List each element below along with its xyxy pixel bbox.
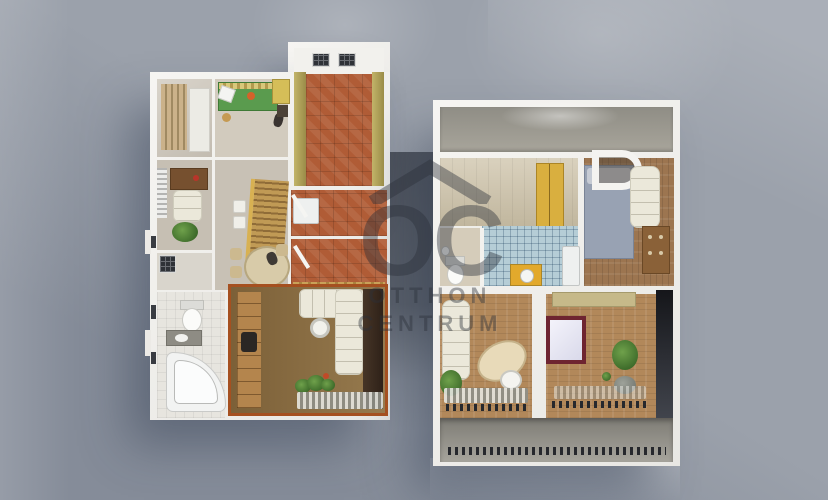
bed-pillow-orange xyxy=(247,92,255,100)
shelf-bed xyxy=(189,88,210,152)
toilet-bowl xyxy=(182,308,202,332)
garage-floor xyxy=(306,74,372,186)
sofa-bedroom xyxy=(630,166,660,228)
background-left-light-band xyxy=(0,0,70,500)
room-wc-left xyxy=(157,253,212,290)
terrace-light-glow xyxy=(500,101,620,131)
sofa-l-right xyxy=(335,289,363,375)
flower-pot xyxy=(323,373,329,379)
toilet-bowl-right xyxy=(447,264,464,285)
dresser-handle-4 xyxy=(659,251,663,255)
stairwell-dark-strip xyxy=(656,290,673,418)
drawers-dark xyxy=(277,105,288,117)
room-utility-1 xyxy=(291,190,387,236)
plant-living-3 xyxy=(321,379,335,391)
stool xyxy=(222,113,231,122)
framed-panel xyxy=(546,316,586,364)
desk-item xyxy=(193,175,199,181)
plant-br-2 xyxy=(602,372,611,381)
side-table-round xyxy=(500,370,522,390)
room-bottom-right xyxy=(546,294,656,418)
window-slot-2 xyxy=(151,305,156,319)
bench-khaki xyxy=(552,292,636,307)
kitchen-cabinet-yellow xyxy=(536,163,564,231)
radiator-grille xyxy=(159,255,176,273)
kitchen-island xyxy=(510,264,542,286)
plant-br-1 xyxy=(612,340,638,370)
rug-living-left xyxy=(297,392,383,409)
plant-study xyxy=(172,222,198,242)
chair-beige-1 xyxy=(230,248,242,260)
rug-bottom-right xyxy=(554,386,646,399)
gap-shadow-column xyxy=(388,152,437,430)
sofa-right-living xyxy=(442,300,470,380)
balcony xyxy=(440,418,673,462)
wardrobe-dark xyxy=(363,289,383,409)
fridge xyxy=(562,246,580,286)
garage-vent-grille-right xyxy=(338,53,356,67)
rug-right-living xyxy=(444,388,528,403)
terrace-top xyxy=(440,107,673,152)
balcony-railing xyxy=(448,447,666,455)
vanity-counter xyxy=(166,330,202,346)
room-bedroom-left xyxy=(215,79,288,157)
chair-beige-3 xyxy=(276,244,288,256)
chair-beige-2 xyxy=(230,266,242,278)
window-slot-1 xyxy=(151,236,156,248)
room-garage xyxy=(294,48,384,186)
coffee-table-round xyxy=(310,318,330,338)
room-closet xyxy=(157,79,212,157)
window-slot-3 xyxy=(151,352,156,364)
radiator-bottom-right xyxy=(552,401,650,408)
radiator-right-living xyxy=(446,404,530,411)
room-bedroom-right xyxy=(584,158,674,286)
bathtub-basin xyxy=(174,360,218,404)
dresser-handle-3 xyxy=(659,235,663,239)
dresser-handle-1 xyxy=(648,235,652,239)
cabinet-seam xyxy=(549,164,550,230)
room-hall-dining xyxy=(215,160,288,290)
tv-unit xyxy=(241,332,257,352)
room-wc-right xyxy=(440,228,484,286)
room-living-right xyxy=(440,294,532,418)
corner-bathtub xyxy=(166,352,226,412)
garage-wall-right xyxy=(372,72,384,186)
room-bathroom xyxy=(157,292,225,418)
window-blinds xyxy=(157,168,167,218)
bookshelf xyxy=(237,292,261,408)
room-living-left xyxy=(228,284,388,416)
chair-white-2 xyxy=(233,216,246,229)
garage-wall-left xyxy=(294,72,306,186)
wardrobe xyxy=(161,84,187,150)
garage-vent-grille-left xyxy=(312,53,330,67)
desk xyxy=(170,168,208,190)
door-ajar-2 xyxy=(293,245,310,269)
island-sink xyxy=(520,269,534,283)
room-study xyxy=(157,160,212,250)
armchair xyxy=(173,190,202,222)
dresser-handle-2 xyxy=(648,251,652,255)
chair-white-1 xyxy=(233,200,246,213)
cabinet-yellow xyxy=(272,79,290,104)
sink xyxy=(175,334,188,342)
toilet-paper-roll xyxy=(441,246,450,256)
floorplan-render: OC OTTHON CENTRUM xyxy=(0,0,828,500)
dresser xyxy=(642,226,670,274)
